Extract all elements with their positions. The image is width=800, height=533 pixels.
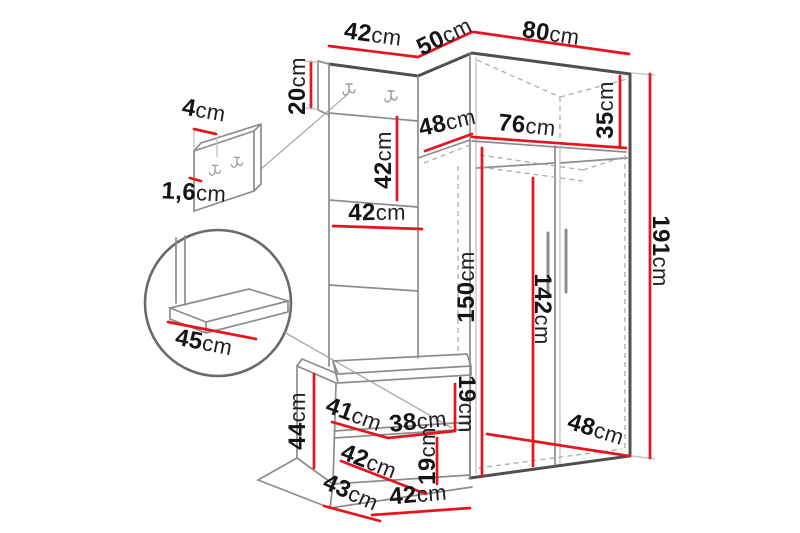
dim-label-bench-width: 42cm [388,478,448,510]
dim-label-bench-upper-gap: 19cm [454,375,481,433]
dim-label-panel-thickness: 1,6cm [161,177,227,207]
dim-label-wardrobe-base-depth: 48cm [564,408,627,451]
bench-cushion [333,354,471,383]
dim-line-top-panel-width [329,46,418,57]
dim-line-panel-width [333,226,422,229]
dim-line-bench-width [372,508,470,515]
dim-label-panel-section-height: 42cm [370,131,397,189]
dim-label-bench-height: 44cm [284,392,311,450]
coat-hook-icon [385,91,397,102]
dim-label-total-height: 191cm [648,215,675,286]
dimension-diagram: 42cm 50cm 80cm 20cm 4cm 1,6cm 42cm 42cm … [0,0,800,533]
dim-label-top-shelf-width: 76cm [497,109,557,142]
panel-side-strip [318,61,329,115]
bench-cushion-side [297,359,338,383]
dim-label-interior-height: 150cm [453,251,480,322]
coat-hook-icon [343,84,355,95]
dim-label-hook-section-height: 20cm [284,57,311,115]
dim-label-top-shelf-height: 35cm [592,81,619,139]
dim-line-panel-depth [194,129,216,134]
dim-label-top-panel-width: 42cm [343,17,404,51]
dim-label-panel-depth: 4cm [180,93,228,127]
coat-hook-icon [232,157,243,167]
dim-label-bench-lower-gap: 19cm [414,427,441,485]
dim-label-panel-width: 42cm [348,198,406,226]
dim-label-door-height: 142cm [530,273,557,344]
dim-label-wardrobe-width: 80cm [521,16,582,51]
diagram-canvas: 42cm 50cm 80cm 20cm 4cm 1,6cm 42cm 42cm … [0,0,800,533]
coat-hook-icon [210,165,221,175]
dim-label-corner-width: 50cm [412,11,476,61]
